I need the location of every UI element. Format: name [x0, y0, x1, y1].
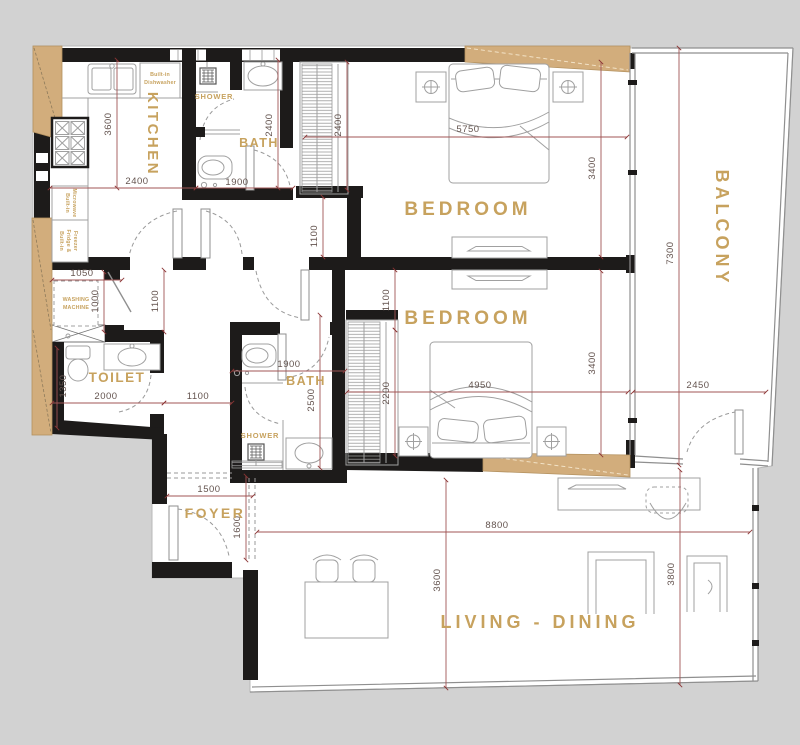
- nightstand: [553, 72, 583, 102]
- label-bath-top: BATH: [239, 136, 279, 150]
- dim-wardrobe-mid: 2200: [381, 381, 392, 404]
- dim-bedroom-top-depth: 3400: [587, 156, 598, 179]
- dim-balcony-width: 2450: [686, 380, 709, 391]
- dim-closet-depth: 1000: [90, 289, 101, 312]
- label-fridge-2: Fridge &: [65, 229, 71, 252]
- floor-plan-drawing: 3600 2400 2400 1900 2400 5750 3400 7300 …: [0, 0, 800, 745]
- nightstand: [537, 427, 566, 456]
- bedroom-top-door-leaf: [201, 209, 210, 258]
- kitchen-hob: [52, 118, 88, 167]
- label-dishwasher-2: Dishwasher: [144, 80, 176, 86]
- dim-bath-top-width: 1900: [225, 177, 248, 188]
- dim-balcony-length: 7300: [665, 241, 676, 264]
- label-washing-2: MACHINE: [63, 305, 89, 311]
- dim-wardrobe-top: 2400: [333, 113, 344, 136]
- dim-hall-left: 1100: [150, 290, 161, 312]
- column-left: [32, 218, 52, 435]
- bath-mid-door-leaf: [278, 334, 286, 380]
- label-bath-mid: BATH: [286, 374, 326, 388]
- label-fridge-3: Freezer: [72, 231, 78, 251]
- label-bedroom-mid: BEDROOM: [404, 308, 531, 329]
- label-washing-1: WASHING: [63, 297, 90, 303]
- dim-bedroom-mid-nook: 1100: [381, 289, 392, 311]
- dim-living-depth: 3600: [432, 568, 443, 591]
- bed-mid: [430, 342, 532, 458]
- dim-toilet-depth: 1350: [58, 374, 69, 397]
- dim-bath-mid-depth: 2500: [306, 388, 317, 411]
- dim-living-width: 8800: [485, 520, 508, 531]
- balcony-door-leaf: [735, 410, 743, 454]
- label-living: LIVING - DINING: [441, 612, 640, 632]
- bedroom-mid-door-leaf: [301, 270, 309, 320]
- label-shower-top: SHOWER: [195, 92, 234, 101]
- dim-hall-top: 1100: [309, 225, 320, 247]
- dim-hall-width: 1100: [187, 391, 209, 402]
- nightstand: [416, 72, 446, 102]
- label-dishwasher-1: Built-in: [150, 72, 170, 78]
- dim-bath-top-depth: 2400: [264, 113, 275, 136]
- kitchen-door-leaf: [173, 209, 182, 258]
- label-kitchen: KITCHEN: [144, 92, 161, 176]
- nightstand: [399, 427, 428, 456]
- floor-plan-page: 3600 2400 2400 1900 2400 5750 3400 7300 …: [0, 0, 800, 745]
- dim-bath-mid-width: 1900: [277, 359, 300, 370]
- label-microwave-2: Microwave: [71, 189, 77, 218]
- label-balcony: BALCONY: [712, 170, 732, 287]
- bath-mid-toilet: [242, 344, 276, 367]
- label-shower-mid: SHOWER: [241, 431, 280, 440]
- label-microwave-1: Built-in: [64, 193, 70, 213]
- label-bedroom-top: BEDROOM: [404, 199, 531, 220]
- dim-kitchen-width: 2400: [125, 176, 148, 187]
- dim-living-right-depth: 3800: [666, 562, 677, 585]
- dim-bedroom-mid-width: 4950: [468, 380, 491, 391]
- dim-kitchen-depth: 3600: [103, 112, 114, 135]
- entry-door-leaf: [169, 506, 178, 560]
- label-toilet: TOILET: [89, 370, 146, 385]
- dim-bedroom-mid-depth: 3400: [587, 351, 598, 374]
- bath-top-toilet: [198, 156, 232, 179]
- dim-toilet-width: 2000: [94, 391, 117, 402]
- label-foyer: FOYER: [185, 505, 246, 521]
- dim-bedroom-top-width: 5750: [456, 124, 479, 135]
- dim-closet-width: 1050: [70, 268, 93, 279]
- dim-foyer-width: 1500: [197, 484, 220, 495]
- label-fridge-1: Built-in: [58, 231, 64, 251]
